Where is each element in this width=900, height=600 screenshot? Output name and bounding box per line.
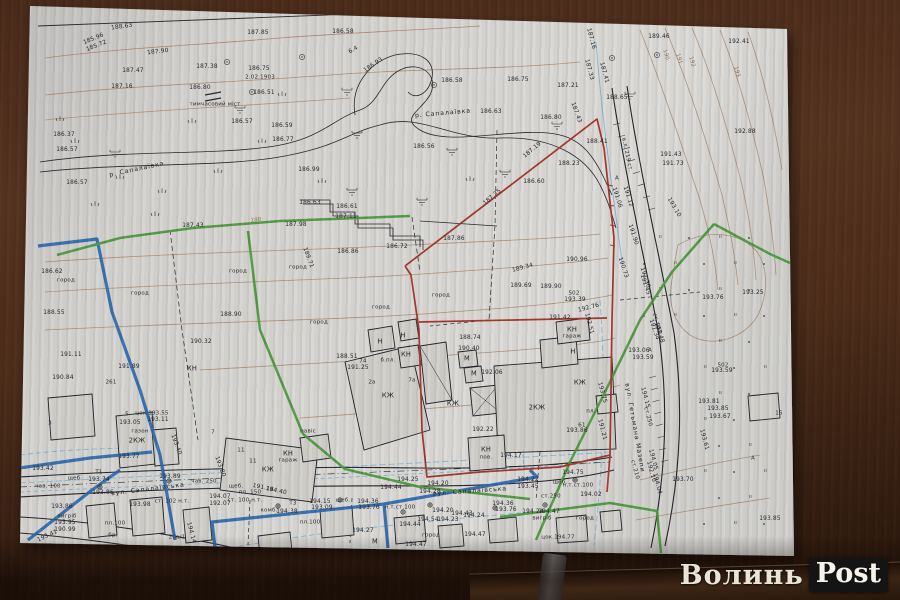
map-label: ст. 102 н.т.	[155, 499, 190, 505]
map-label: город	[372, 305, 390, 311]
map-label: КН	[187, 366, 197, 373]
map-label: 193.05	[119, 421, 140, 427]
map-label: ст.250	[541, 494, 561, 500]
map-label: 193.45	[517, 485, 538, 491]
map-label: 186.61	[336, 205, 357, 211]
map-label: город	[289, 265, 307, 271]
map-label: 7а	[408, 378, 415, 384]
map-label: 2.02.1903	[245, 75, 275, 81]
map-label: 188.65	[606, 96, 627, 102]
map-label: 187.19	[523, 142, 543, 160]
map-label: КЖ	[447, 401, 459, 408]
map-label: вигріб	[57, 514, 76, 520]
map-label: н.т.ст.100	[385, 505, 416, 511]
map-label: КЖ	[574, 380, 586, 387]
map-label: 194.20	[432, 509, 453, 515]
map-label: 5	[125, 412, 129, 418]
map-label: город	[432, 293, 450, 299]
watermark: Волинь Post	[680, 558, 888, 592]
map-label: 194.24	[463, 514, 484, 520]
map-label: 186.80	[189, 86, 210, 92]
map-label: 2а	[368, 380, 375, 386]
map-label: 192.51	[582, 313, 593, 335]
map-label: 194.27	[352, 529, 373, 535]
map-label: 186.57	[231, 120, 252, 126]
map-label: щеб.	[336, 498, 351, 504]
map-label: 186.56	[413, 145, 434, 151]
map-label: 193.77	[118, 455, 139, 461]
map-label: 192.41	[728, 40, 749, 46]
map-label: чав. 250	[191, 479, 216, 485]
map-label: 193.11	[147, 418, 168, 424]
map-label: пл.100	[300, 520, 321, 526]
map-label: 74	[359, 359, 366, 365]
map-label: 186.77	[272, 138, 293, 144]
map-label: 193.59	[632, 356, 653, 362]
map-label: 186.63	[299, 201, 320, 207]
map-label: 193.41	[37, 530, 59, 544]
map-label: 193.76	[495, 508, 516, 514]
map-label: 192	[687, 56, 695, 68]
map-label: 189.46	[648, 35, 669, 41]
map-label: 194.38	[276, 510, 297, 516]
map-label: 186.57	[56, 148, 77, 154]
map-label: 194.75	[562, 471, 583, 477]
map-label: 193.76	[702, 296, 723, 302]
map-label: щеб.	[68, 476, 83, 482]
map-labels: 188.63185.96185.72187.90187.85187.47187.…	[0, 0, 900, 600]
map-label: 194.47	[405, 543, 426, 549]
map-label: 194.20	[427, 482, 448, 488]
map-label: 194.28	[419, 490, 440, 496]
map-label: 191.90	[626, 224, 638, 246]
map-label: 193.86	[51, 505, 72, 511]
map-label: 193	[732, 66, 740, 78]
map-label: 187.85	[247, 31, 268, 37]
map-label: 188.63	[111, 24, 133, 33]
map-label: 194.47	[464, 533, 485, 539]
map-label: 186.58	[441, 79, 462, 85]
map-label: 194.23	[437, 518, 458, 524]
map-label: 186.99	[298, 168, 319, 174]
map-label: 187.35	[483, 189, 503, 207]
map-label: чав. 100	[35, 484, 60, 490]
map-label: 193.42	[32, 467, 53, 473]
map-label: 187.86	[443, 237, 464, 243]
map-label: М	[464, 356, 470, 363]
map-label: Т3	[289, 501, 296, 507]
map-label: Н	[377, 339, 382, 346]
map-label: 188.55	[43, 311, 64, 317]
map-label: 193.09	[311, 506, 332, 512]
map-label: 194.25	[397, 478, 418, 484]
map-label: гараж	[562, 334, 581, 340]
map-label: 194.44	[399, 523, 420, 529]
map-label: вул. Сапалаївська	[433, 486, 507, 497]
map-label: 193.89	[159, 475, 180, 481]
map-label: 261	[105, 380, 116, 386]
map-label: 193.70	[672, 478, 693, 484]
map-label: 189.90	[540, 285, 561, 291]
map-label: 192.06	[481, 371, 502, 377]
map-label: 193.98	[129, 503, 150, 509]
map-label: бр.	[108, 533, 117, 539]
map-label: вигріб	[532, 516, 551, 522]
map-label: 193.85	[707, 407, 728, 413]
map-label: 193.39	[564, 298, 585, 304]
map-label: 6.4	[348, 46, 359, 56]
map-label: 193.25	[742, 291, 763, 297]
map-label: 190	[661, 49, 669, 61]
map-label: 191.21	[595, 419, 606, 441]
map-label: 193.74	[88, 478, 109, 484]
map-label: 192.22	[472, 428, 493, 434]
map-label: пл.100	[105, 521, 126, 527]
map-label: 191	[674, 53, 682, 65]
map-label: гараж	[278, 458, 297, 464]
map-label: 187.98	[285, 223, 306, 229]
map-label: 191.12	[621, 186, 633, 208]
map-label: 187.33	[582, 59, 593, 81]
map-label: 186.86	[337, 250, 358, 256]
map-label: Н	[570, 349, 575, 356]
map-label: пл.	[586, 409, 595, 415]
map-label: 186.75	[507, 78, 528, 84]
map-label: 193.10	[665, 197, 681, 219]
map-label: 188.74	[459, 336, 480, 342]
map-label: 193.61	[697, 429, 708, 451]
map-label: 20а/1	[169, 535, 186, 541]
map-label: 193.67	[709, 415, 730, 421]
map-label: 193.85	[759, 517, 780, 523]
map-label: 186.59	[271, 124, 292, 130]
map-label: 187.43	[569, 102, 582, 124]
map-label: 187.11	[335, 215, 356, 221]
map-label: 186.58	[332, 30, 353, 36]
map-label: город	[131, 291, 149, 297]
map-label: 193.80	[213, 456, 226, 478]
map-label: 191.42	[549, 316, 570, 322]
map-label: 194.40	[265, 487, 287, 497]
map-label: 188.90	[220, 313, 241, 319]
map-label: ст.250	[642, 407, 652, 427]
map-label: 190.84	[52, 376, 73, 382]
map-label: 188	[250, 218, 261, 224]
map-label: 193.81	[698, 400, 719, 406]
map-label: 186.63	[480, 110, 501, 116]
map-label: 187.16	[584, 28, 595, 50]
map-label: город	[310, 320, 328, 326]
map-label: 193.86	[566, 429, 587, 435]
map-label: 194.44	[380, 486, 401, 492]
map-label: 194.02	[580, 493, 601, 499]
map-label: 191.06	[610, 187, 622, 209]
map-label: газон	[131, 429, 148, 435]
map-label: 193.86	[92, 491, 113, 497]
map-label: КЖ	[262, 467, 274, 474]
map-label: комб.	[261, 508, 278, 514]
map-label: пов.	[480, 455, 493, 461]
map-label: 186.80	[540, 116, 561, 122]
map-label: 190.32	[190, 340, 211, 346]
map-label: навіс	[300, 429, 316, 435]
map-label: 11	[249, 459, 256, 465]
map-label: 191.89	[118, 365, 139, 371]
watermark-text-boxed: Post	[809, 558, 888, 592]
map-label: 187.16	[111, 85, 132, 91]
map-label: КН	[481, 447, 491, 454]
map-label: 193.59	[711, 369, 732, 375]
map-label: 191.11	[60, 353, 81, 359]
map-label: 186.60	[523, 180, 544, 186]
map-label: тимчасовий міст	[190, 102, 241, 108]
map-label: город	[576, 516, 594, 522]
map-label: 186.72	[386, 245, 407, 251]
map-label: 190.96	[566, 258, 587, 264]
map-label: 192.88	[734, 130, 755, 136]
map-label: 194.15	[638, 387, 649, 409]
map-label: вул. Сапалаївська	[111, 482, 185, 497]
map-label: 190.40	[458, 347, 479, 353]
map-label: 7	[211, 430, 215, 436]
map-label: в.л. 219 ст.	[620, 137, 633, 172]
map-label: 191.43	[660, 153, 681, 159]
map-label: 186.37	[53, 133, 74, 139]
map-label: 186.51	[253, 91, 274, 97]
map-label: 187.43	[182, 224, 203, 230]
map-label: город	[57, 278, 75, 284]
map-label: 186.93	[364, 57, 385, 74]
map-label: КН	[401, 352, 411, 359]
map-label: р. Сапалаївка	[415, 108, 471, 119]
map-label: 187.41	[597, 62, 608, 84]
map-label: 193.40	[169, 434, 182, 456]
map-label: 186.57	[66, 181, 87, 187]
map-label: 191.73	[662, 162, 683, 168]
map-label: 191.25	[347, 366, 368, 372]
map-label: 188.51	[336, 355, 357, 361]
map-label: 191.45	[638, 274, 650, 296]
map-label: цок 193.55	[135, 411, 168, 417]
map-label: 189.69	[510, 284, 531, 290]
map-label: 187.38	[196, 65, 217, 71]
photo-of-cadastral-map: ıııııııııııııııııııııııııııııııııııııı	[0, 0, 900, 600]
map-label: 11	[237, 448, 244, 454]
map-label: б.пл.	[381, 358, 396, 364]
map-label: ст. 100 н.т.	[228, 498, 263, 504]
map-label: 2КЖ	[529, 405, 546, 412]
watermark-text-plain: Волинь	[680, 560, 804, 591]
map-label: М	[372, 539, 378, 546]
map-label: цок.194.77	[541, 535, 574, 541]
map-label: КЖ	[382, 393, 394, 400]
map-label: 186.75	[248, 67, 269, 73]
map-label: Т1	[95, 470, 102, 476]
map-label: 194.17	[500, 454, 521, 460]
map-label: 15	[775, 411, 782, 417]
map-label: 190.73	[616, 257, 628, 279]
map-label: 187.47	[122, 69, 143, 75]
map-label: А	[615, 176, 619, 182]
map-label: Н	[400, 333, 405, 340]
map-label: 194.14	[184, 522, 195, 544]
map-label: 3	[48, 421, 52, 427]
map-label: р. Сапалаївка	[109, 161, 165, 179]
map-label: М	[471, 371, 477, 378]
map-label: 193.95	[54, 521, 75, 527]
map-label: 189.34	[512, 263, 534, 274]
map-label: город	[229, 269, 247, 275]
map-label: 193.75	[595, 382, 606, 404]
map-label: 188.23	[558, 162, 579, 168]
map-label: 193.76	[358, 506, 379, 512]
map-label: 2КЖ	[129, 438, 146, 445]
map-label: н.т.ст.100	[563, 483, 594, 489]
map-label: 187.90	[147, 49, 169, 57]
map-label: 193.06	[628, 349, 649, 355]
map-label: 188.41	[586, 140, 607, 146]
map-label: город	[422, 533, 440, 539]
map-label: 502	[568, 291, 579, 297]
map-label: А	[751, 456, 755, 462]
map-label: 186.62	[41, 270, 62, 276]
map-label: 194.22	[517, 478, 538, 484]
map-label: 194.04	[650, 473, 661, 495]
map-label: 187.21	[557, 84, 578, 90]
